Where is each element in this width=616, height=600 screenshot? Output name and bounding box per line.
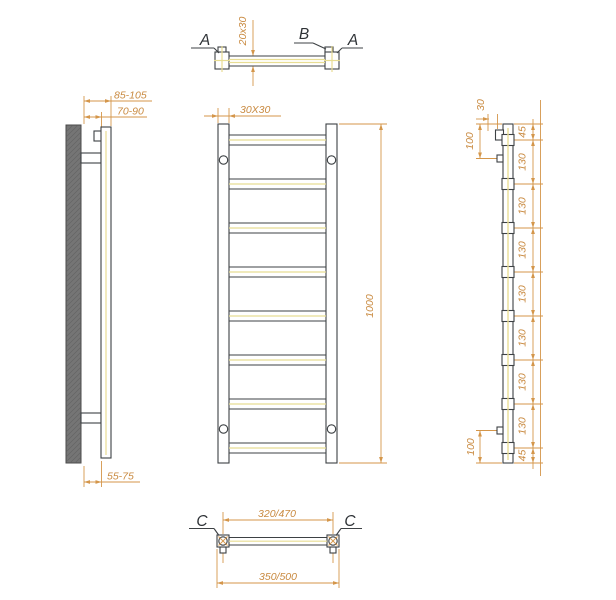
arrowhead (531, 184, 535, 190)
left-post (218, 124, 229, 463)
chain-dim-label: 130 (517, 373, 529, 391)
centerlines (106, 46, 508, 546)
arrowhead (333, 581, 339, 585)
dim-70-90: 70-90 (117, 106, 144, 118)
arrowhead (217, 581, 223, 585)
chain-dim-label: 130 (517, 329, 529, 347)
mounting-bracket (81, 153, 101, 163)
arrowhead (379, 124, 383, 130)
arrowhead (531, 316, 535, 322)
dim-20x30: 20x30 (237, 17, 249, 47)
chain-dim-label: 45 (517, 450, 529, 462)
arrowhead (84, 480, 90, 484)
chain-dim-label: 130 (517, 153, 529, 171)
arrowhead (327, 518, 333, 522)
arrowhead (84, 115, 90, 119)
mounting-hole (327, 425, 335, 433)
dim-100-top: 100 (464, 132, 476, 150)
mounting-hole (219, 156, 227, 164)
arrowhead (96, 480, 102, 484)
arrowhead (478, 124, 482, 130)
dim-350-500: 350/500 (259, 571, 297, 583)
arrowhead (531, 448, 535, 454)
side-view-left (66, 125, 111, 463)
arrowhead (478, 153, 482, 159)
arrowhead (531, 178, 535, 184)
arrowhead (531, 134, 535, 140)
arrowhead (531, 272, 535, 278)
annotation-text: A B A 20x30 85-105 70-90 55-75 30X30 100… (107, 17, 529, 583)
leader-line (313, 43, 326, 49)
section-label-a-right: A (347, 32, 358, 49)
ladder-rungs (229, 135, 326, 453)
arrowhead (531, 360, 535, 366)
section-label-b: B (299, 26, 309, 43)
chain-dim-label: 130 (517, 285, 529, 303)
arrowhead (531, 404, 535, 410)
dim-55-75: 55-75 (107, 471, 134, 483)
dim-30x30: 30X30 (240, 104, 271, 116)
arrowhead (531, 228, 535, 234)
dim-85-105: 85-105 (114, 90, 147, 102)
mounting-hole (219, 425, 227, 433)
arrowhead (478, 457, 482, 463)
arrowhead (212, 114, 218, 118)
section-label-c-left: C (196, 513, 208, 530)
arrowhead (531, 457, 535, 463)
right-post (326, 124, 337, 463)
dim-30: 30 (475, 99, 487, 111)
arrowhead (531, 266, 535, 272)
arrowhead (531, 310, 535, 316)
fitting-tab (330, 547, 336, 553)
chain-dim-labels: 4513013013013013013013045 (517, 126, 529, 461)
section-label-a-left: A (199, 32, 210, 49)
dim-320-470: 320/470 (258, 508, 296, 520)
chain-dim-label: 45 (517, 126, 529, 138)
side-view-right (496, 124, 515, 463)
section-label-c-right: C (344, 513, 356, 530)
arrowhead (251, 66, 255, 72)
arrowhead (531, 140, 535, 146)
arrowhead (96, 115, 102, 119)
section-view-top (191, 43, 363, 69)
bracket-lug (497, 155, 503, 162)
bracket-lug (497, 427, 503, 434)
arrowhead (379, 457, 383, 463)
arrowhead (105, 99, 111, 103)
dim-100-bottom: 100 (465, 438, 477, 456)
arrowheads (84, 50, 535, 585)
dim-1000: 1000 (364, 294, 376, 318)
arrowhead (531, 398, 535, 404)
arrowhead (478, 431, 482, 437)
chain-dim-label: 130 (517, 241, 529, 259)
mounting-bracket (81, 413, 101, 423)
fitting-tab (220, 547, 226, 553)
arrowhead (84, 99, 90, 103)
arrowhead (531, 442, 535, 448)
arrowhead (531, 354, 535, 360)
chain-dim-label: 130 (517, 417, 529, 435)
mounting-hole (327, 156, 335, 164)
arrowhead (531, 222, 535, 228)
arrowhead (223, 518, 229, 522)
technical-drawing: A B A 20x30 85-105 70-90 55-75 30X30 100… (0, 0, 616, 600)
drawing-page: A B A 20x30 85-105 70-90 55-75 30X30 100… (0, 0, 616, 600)
chain-dim-label: 130 (517, 197, 529, 215)
front-view (218, 124, 337, 463)
arrowhead (229, 114, 235, 118)
arrowhead (251, 50, 255, 56)
arrowhead (531, 124, 535, 130)
